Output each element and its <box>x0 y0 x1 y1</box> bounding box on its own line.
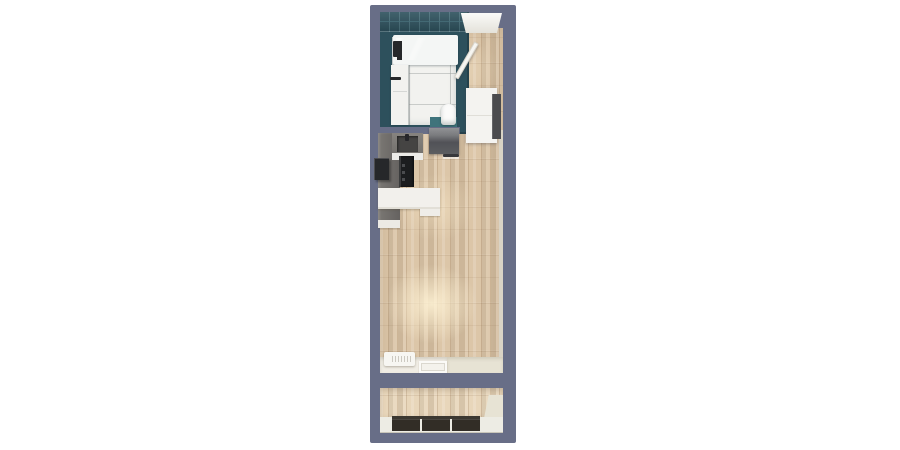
cabinet-handle-icon <box>443 154 459 157</box>
bathtub-water <box>396 38 455 60</box>
inner-wall-face <box>499 130 503 373</box>
bathroom-cabinet <box>391 65 409 125</box>
balcony-door-step <box>419 361 447 373</box>
radiator <box>384 352 415 366</box>
bathtub <box>393 35 458 65</box>
wardrobe-side-panel <box>492 94 501 139</box>
cabinet-handle-icon <box>390 77 401 80</box>
cooktop <box>399 156 414 187</box>
balcony-glass-panel <box>452 419 480 431</box>
kitchen-counter-cap <box>378 220 400 228</box>
kitchen-counter-white <box>378 188 440 209</box>
wall-oven <box>374 158 389 180</box>
window-sill-right <box>447 357 503 373</box>
page-background <box>0 0 900 450</box>
kitchen-counter-step <box>420 209 440 216</box>
kitchen-wall-cabinets <box>429 128 459 154</box>
balcony-floor <box>380 388 503 417</box>
balcony-glass-panel <box>422 419 450 431</box>
balcony-partition-wall <box>370 373 516 388</box>
balcony-glass-panel <box>392 419 420 431</box>
bath-faucet-icon <box>393 41 402 57</box>
bathroom-wall-tiles <box>380 12 469 32</box>
apartment-floor-plan <box>370 5 516 443</box>
toilet <box>441 104 456 125</box>
entry-door-opening <box>460 13 502 33</box>
sink-faucet-icon <box>405 134 409 141</box>
